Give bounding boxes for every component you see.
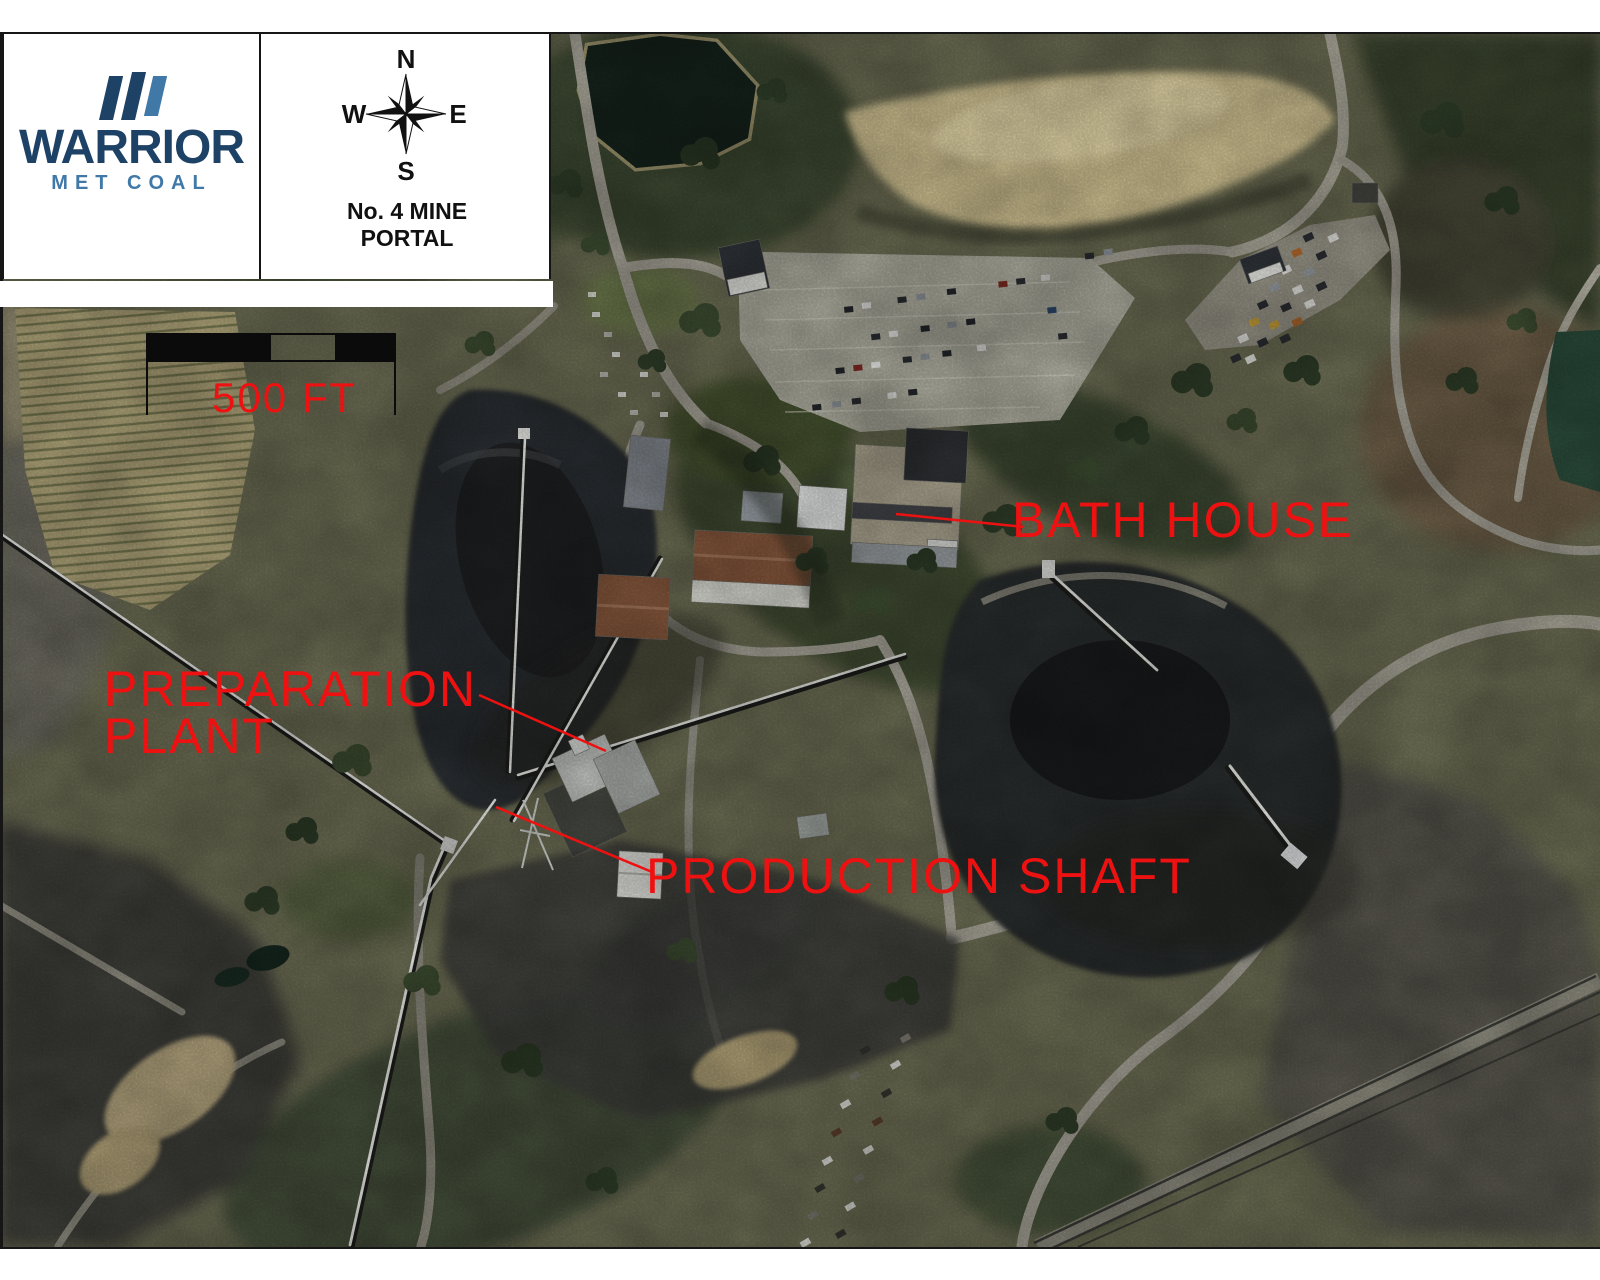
compass-east-label: E bbox=[449, 99, 466, 129]
label-production-shaft: PRODUCTION SHAFT bbox=[646, 853, 1192, 900]
warrior-met-coal-logo: WARRIOR MET COAL bbox=[4, 34, 259, 279]
compass-west-label: W bbox=[342, 99, 367, 129]
scale-bar-left-tick bbox=[146, 333, 148, 415]
map-sheet: BATH HOUSE PREPARATION PLANT PRODUCTION … bbox=[0, 0, 1600, 1280]
scale-bar-segment-dark bbox=[148, 335, 271, 360]
sheet-bottom-margin bbox=[0, 1249, 1600, 1280]
map-title-line2: PORTAL bbox=[261, 225, 553, 252]
logo-stripes-icon bbox=[67, 68, 197, 124]
map-title-line1: No. 4 MINE bbox=[261, 198, 553, 225]
scale-bar bbox=[146, 333, 396, 362]
scale-bar-segment-light bbox=[271, 335, 335, 360]
compass-north-label: N bbox=[397, 44, 416, 74]
compass-cell: N S W E No. 4 MINE PORTAL bbox=[261, 34, 553, 279]
label-bath-house: BATH HOUSE bbox=[1012, 497, 1353, 544]
scale-bar-segment-dark2 bbox=[335, 335, 394, 360]
logo-tagline: MET COAL bbox=[4, 172, 259, 195]
legend-box: WARRIOR MET COAL bbox=[2, 34, 551, 279]
legend-substrip bbox=[0, 281, 553, 307]
compass-rose-icon: N S W E bbox=[321, 38, 491, 198]
label-preparation-plant: PREPARATION PLANT bbox=[104, 666, 477, 760]
logo-brand-name: WARRIOR bbox=[4, 120, 259, 175]
compass-south-label: S bbox=[397, 156, 414, 186]
label-preparation-plant-line2: PLANT bbox=[104, 713, 477, 760]
sheet-top-margin bbox=[0, 0, 1600, 32]
scale-bar-label: 500 FT bbox=[212, 374, 357, 422]
scale-bar-right-tick bbox=[394, 333, 396, 415]
label-preparation-plant-line1: PREPARATION bbox=[104, 666, 477, 713]
